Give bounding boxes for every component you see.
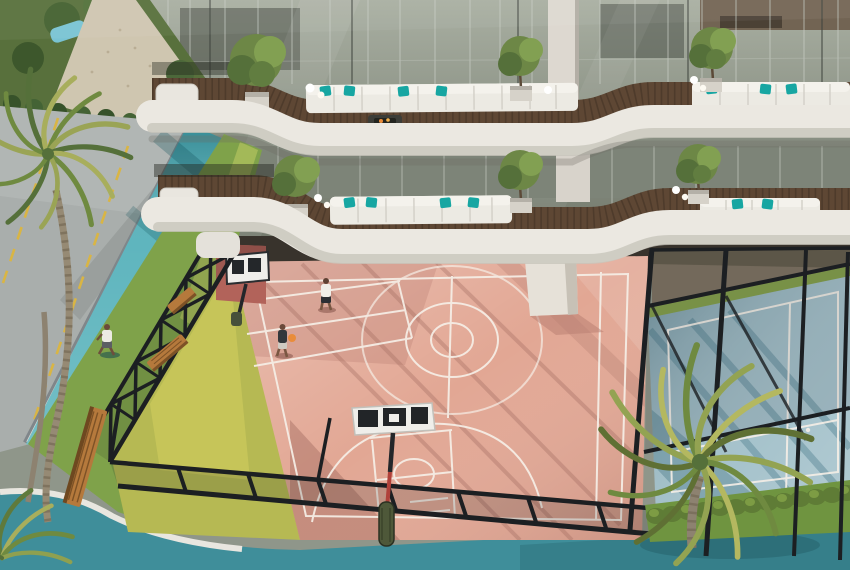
entry-canopy xyxy=(196,232,240,258)
sphere-lamp xyxy=(314,194,322,202)
sphere-lamp xyxy=(544,86,552,94)
glass-railing-tint xyxy=(154,164,274,177)
sphere-lamp xyxy=(682,194,688,200)
aerial-render-scene xyxy=(0,0,850,570)
render-canvas xyxy=(0,0,850,570)
sofa xyxy=(306,83,578,113)
sphere-lamp xyxy=(690,76,698,84)
sphere-lamp xyxy=(700,85,706,91)
sofa xyxy=(330,195,512,225)
basketball xyxy=(288,334,296,342)
sphere-lamp xyxy=(672,186,680,194)
sphere-lamp xyxy=(306,84,315,93)
sphere-lamp xyxy=(318,92,325,99)
sphere-lamp xyxy=(324,202,330,208)
